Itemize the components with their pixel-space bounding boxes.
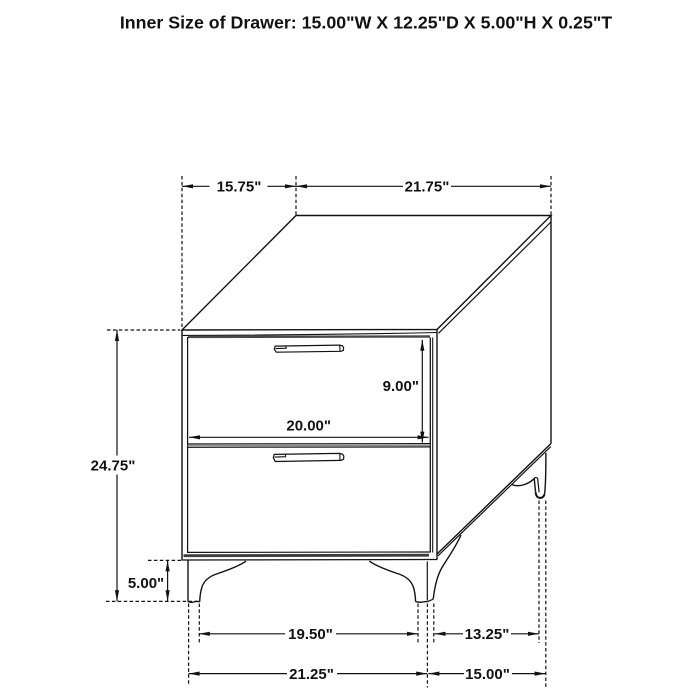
- svg-text:21.25": 21.25": [289, 666, 334, 683]
- svg-text:21.75": 21.75": [405, 179, 450, 196]
- svg-text:Inner Size of Drawer: 15.00"W: Inner Size of Drawer: 15.00"W X 12.25"D …: [120, 13, 612, 33]
- svg-text:20.00": 20.00": [286, 418, 331, 435]
- svg-text:9.00": 9.00": [383, 378, 419, 395]
- svg-text:15.75": 15.75": [217, 179, 262, 196]
- svg-text:13.25": 13.25": [465, 626, 510, 643]
- svg-text:5.00": 5.00": [128, 575, 164, 592]
- svg-text:24.75": 24.75": [91, 458, 136, 475]
- svg-text:19.50": 19.50": [288, 626, 333, 643]
- svg-text:15.00": 15.00": [465, 666, 510, 683]
